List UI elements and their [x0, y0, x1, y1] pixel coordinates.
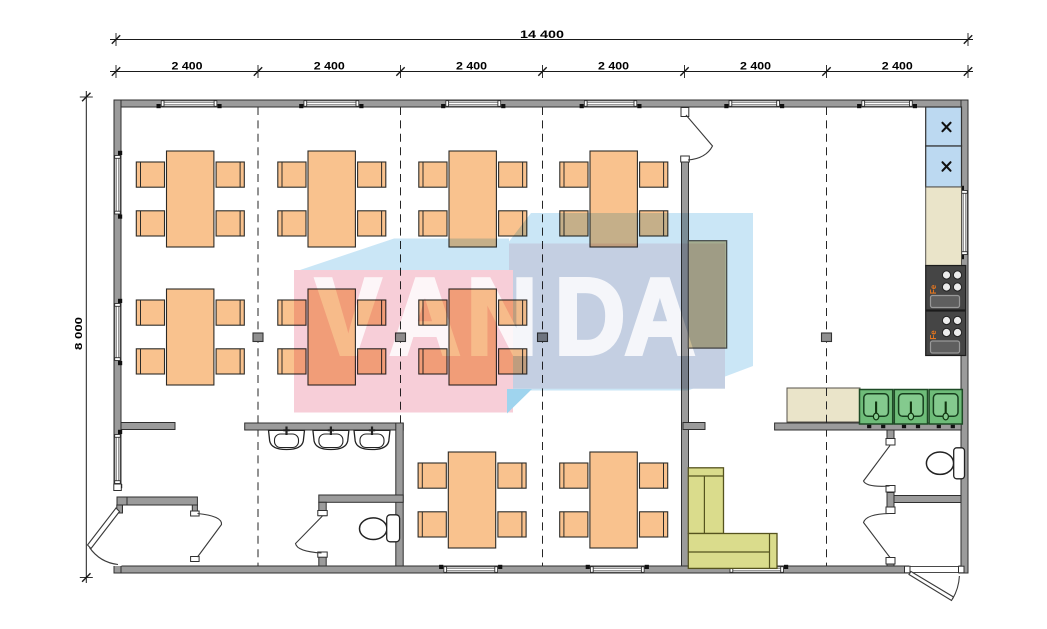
svg-text:2 400: 2 400 [598, 61, 629, 73]
svg-text:A: A [625, 255, 696, 377]
svg-text:D: D [555, 255, 626, 377]
svg-text:8 000: 8 000 [73, 317, 85, 350]
svg-text:2 400: 2 400 [172, 61, 203, 73]
svg-text:2 400: 2 400 [882, 61, 913, 73]
svg-text:2 400: 2 400 [456, 61, 487, 73]
svg-text:2 400: 2 400 [740, 61, 771, 73]
svg-text:14 400: 14 400 [520, 29, 564, 41]
svg-text:2 400: 2 400 [314, 61, 345, 73]
svg-text:Fe: Fe [929, 284, 938, 294]
svg-text:A: A [390, 255, 461, 377]
svg-text:N: N [467, 255, 538, 377]
svg-text:Fe: Fe [929, 330, 938, 340]
svg-text:V: V [316, 255, 381, 377]
